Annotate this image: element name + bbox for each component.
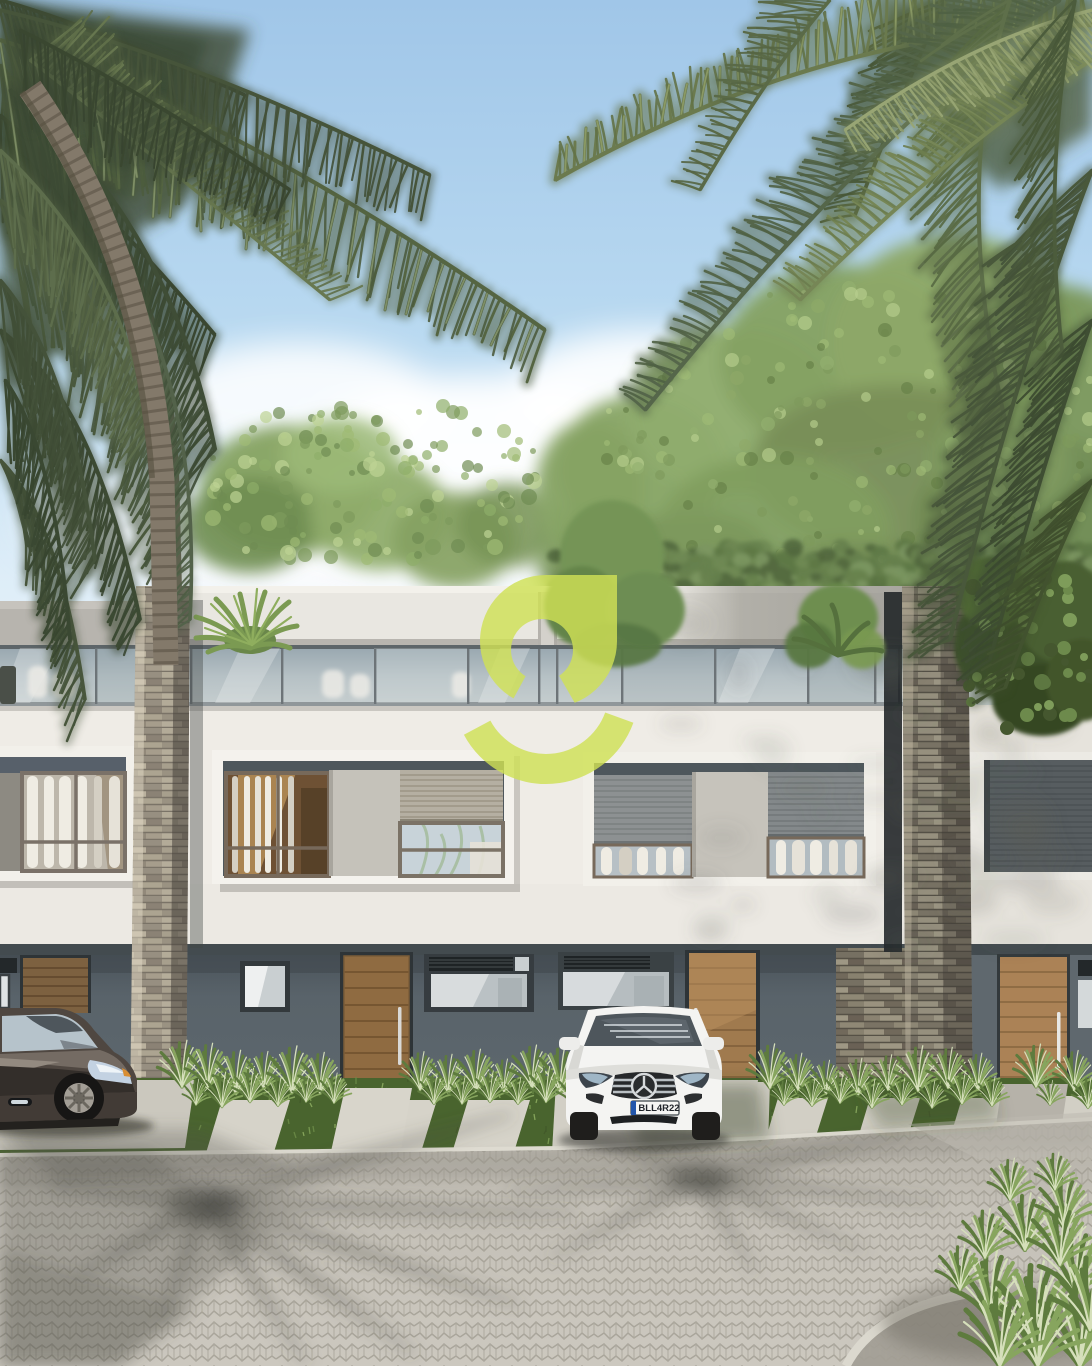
svg-text:BLL4R22: BLL4R22	[638, 1103, 679, 1114]
